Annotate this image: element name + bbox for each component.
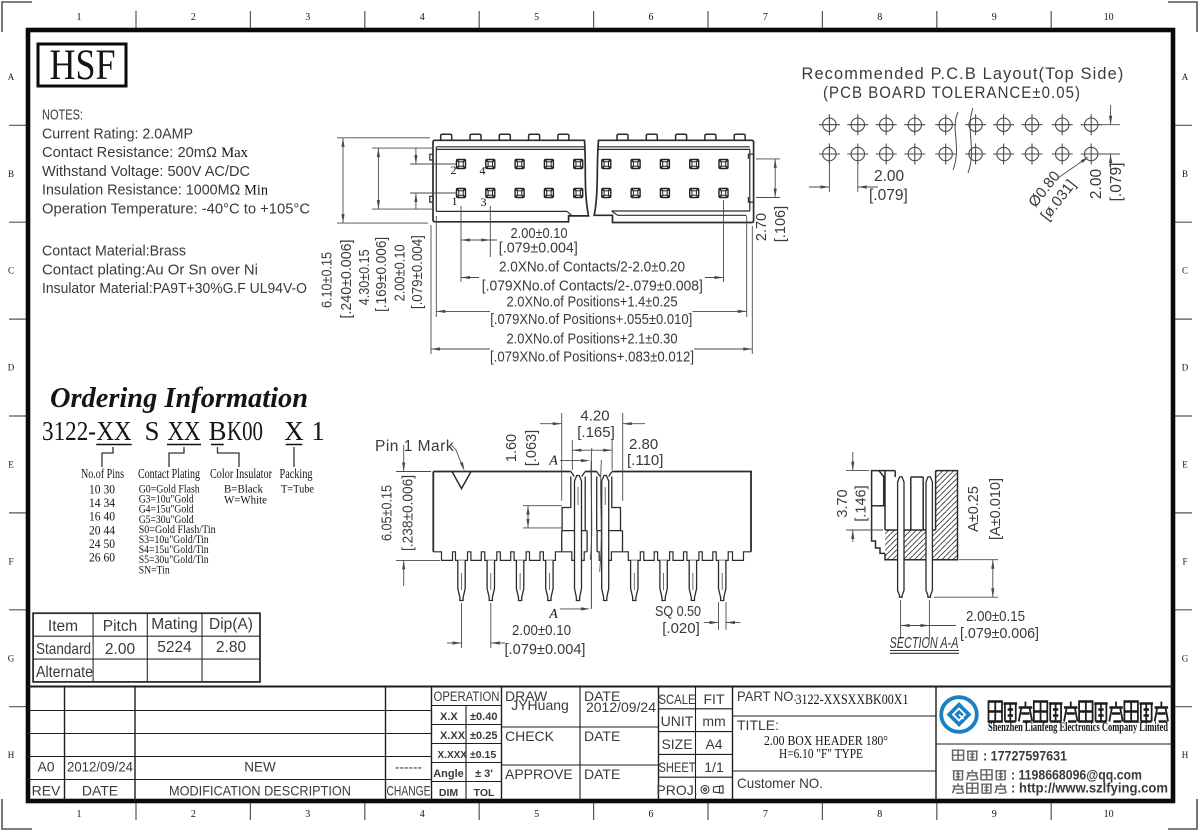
svg-text:20 44: 20 44: [89, 523, 116, 537]
svg-text:3: 3: [305, 809, 310, 820]
svg-text:2.00±0.10: 2.00±0.10: [392, 244, 409, 301]
svg-text:A4: A4: [705, 736, 722, 752]
svg-text:[.146]: [.146]: [854, 485, 870, 521]
svg-text:[.079]: [.079]: [1108, 163, 1125, 202]
svg-text:D: D: [1182, 363, 1189, 373]
svg-text:C: C: [8, 266, 14, 276]
svg-text:Standard: Standard: [36, 641, 91, 658]
svg-text:Contact Resistance: 20mΩ Max: Contact Resistance: 20mΩ Max: [42, 144, 248, 161]
svg-text:S: S: [144, 416, 159, 446]
svg-text:G: G: [8, 653, 15, 663]
svg-text:A: A: [8, 72, 15, 82]
svg-text:[.079±0.004]: [.079±0.004]: [499, 240, 578, 257]
svg-text:A±0.25: A±0.25: [966, 486, 982, 532]
svg-text:2.00±0.15: 2.00±0.15: [966, 608, 1025, 625]
svg-text:MODIFICATION DESCRIPTION: MODIFICATION DESCRIPTION: [169, 783, 351, 799]
svg-text:5: 5: [534, 12, 539, 23]
svg-text:REV: REV: [32, 783, 61, 799]
svg-text:±0.25: ±0.25: [470, 730, 497, 742]
svg-text:TOL: TOL: [474, 787, 495, 799]
svg-text:Contact Plating: Contact Plating: [138, 466, 200, 481]
svg-text:A: A: [548, 607, 558, 622]
svg-text:OPERATION: OPERATION: [434, 689, 500, 704]
svg-text:Angle: Angle: [433, 768, 464, 780]
svg-text:[.110]: [.110]: [627, 452, 663, 469]
svg-text:SHEET: SHEET: [659, 759, 696, 775]
svg-text:[.165]: [.165]: [577, 424, 615, 441]
svg-text:Current Rating: 2.0AMP: Current Rating: 2.0AMP: [42, 125, 193, 142]
svg-text:mm: mm: [702, 713, 725, 729]
svg-text:1.60: 1.60: [504, 434, 520, 462]
svg-text:HSF: HSF: [50, 42, 116, 89]
svg-text:2012/09/24: 2012/09/24: [586, 699, 656, 715]
svg-text:[A±0.010]: [A±0.010]: [988, 478, 1004, 540]
svg-text:: http://www.szlfying.com: : http://www.szlfying.com: [1011, 780, 1168, 796]
svg-text:± 3': ± 3': [475, 768, 493, 780]
svg-text:2: 2: [191, 12, 196, 23]
svg-text:2.80: 2.80: [629, 436, 658, 453]
svg-text:APPROVE: APPROVE: [505, 766, 573, 782]
svg-text:G: G: [1182, 653, 1189, 663]
svg-text:Alternate: Alternate: [36, 664, 93, 681]
svg-text:7: 7: [763, 12, 768, 23]
svg-text:A0: A0: [37, 759, 54, 775]
svg-text:B: B: [208, 416, 226, 446]
svg-text:H=6.10 "F" TYPE: H=6.10 "F" TYPE: [779, 746, 863, 761]
svg-text:X: X: [284, 416, 304, 446]
svg-text:3: 3: [481, 195, 487, 209]
svg-text:3: 3: [305, 12, 310, 23]
svg-text:Pitch: Pitch: [103, 618, 137, 635]
svg-text:D: D: [8, 363, 15, 373]
svg-text:NEW: NEW: [244, 760, 276, 775]
svg-text:6: 6: [649, 12, 654, 23]
svg-text:[.079XNo.of Positions+.055±0.0: [.079XNo.of Positions+.055±0.010]: [490, 311, 692, 328]
svg-text:4.30±0.15: 4.30±0.15: [356, 249, 373, 305]
svg-text:1: 1: [452, 194, 458, 208]
svg-text:Insulator Material:PA9T+30%G.F: Insulator Material:PA9T+30%G.F UL94V-O: [42, 280, 307, 297]
svg-text:14 34: 14 34: [89, 496, 116, 510]
svg-text:[.079]: [.079]: [869, 187, 908, 204]
svg-text:2.0XNo.of Positions+2.1±0.30: 2.0XNo.of Positions+2.1±0.30: [507, 331, 678, 348]
svg-text:SIZE: SIZE: [661, 736, 692, 752]
svg-text:Dip(A): Dip(A): [209, 616, 253, 633]
svg-text:5224: 5224: [157, 639, 192, 656]
svg-text:DIM: DIM: [439, 787, 459, 799]
svg-text:1: 1: [77, 12, 82, 23]
svg-text:Recommended P.C.B Layout(Top S: Recommended P.C.B Layout(Top Side): [802, 64, 1125, 83]
svg-text:No.of Pins: No.of Pins: [81, 466, 124, 481]
svg-text:SQ 0.50: SQ 0.50: [655, 603, 701, 620]
svg-text:9: 9: [992, 12, 997, 23]
svg-text:DATE: DATE: [82, 783, 118, 799]
svg-text:CHECK: CHECK: [505, 728, 555, 744]
svg-text:[.106]: [.106]: [773, 206, 789, 242]
svg-text:FIT: FIT: [704, 691, 725, 707]
svg-text:[.169±0.006]: [.169±0.006]: [373, 237, 390, 312]
svg-text:8: 8: [877, 809, 882, 820]
svg-text:SECTION A-A: SECTION A-A: [890, 635, 959, 652]
svg-text:K00: K00: [227, 416, 263, 446]
svg-text:2012/09/24: 2012/09/24: [67, 759, 133, 775]
svg-text:Packing: Packing: [280, 466, 313, 481]
svg-text:24 50: 24 50: [89, 537, 115, 551]
svg-text:E: E: [1182, 460, 1188, 470]
svg-text:------: ------: [395, 760, 422, 775]
svg-text:6: 6: [649, 809, 654, 820]
svg-text:4: 4: [420, 809, 425, 820]
svg-text:±0.15: ±0.15: [470, 749, 496, 761]
svg-text:[.020]: [.020]: [662, 620, 700, 637]
svg-text:DATE: DATE: [584, 728, 620, 744]
svg-text:2.00: 2.00: [874, 168, 905, 185]
svg-text:CHANGE: CHANGE: [387, 783, 431, 799]
svg-text:9: 9: [992, 809, 997, 820]
svg-text:[.079XNo.of Contacts/2-.079±0.: [.079XNo.of Contacts/2-.079±0.008]: [482, 278, 703, 295]
svg-text:2.70: 2.70: [754, 213, 770, 241]
svg-text:1: 1: [311, 416, 325, 446]
svg-text:10: 10: [1104, 809, 1114, 820]
svg-text:Operation Temperature: -40°C t: Operation Temperature: -40°C to +105°C: [42, 201, 310, 218]
svg-text:T=Tube: T=Tube: [281, 482, 314, 496]
svg-text:2.0XNo.of Positions+1.4±0.25: 2.0XNo.of Positions+1.4±0.25: [507, 294, 678, 311]
svg-text:5: 5: [534, 809, 539, 820]
svg-text:Mating: Mating: [151, 616, 198, 633]
svg-text:[.079±0.004]: [.079±0.004]: [505, 641, 586, 658]
svg-text:2.00: 2.00: [105, 641, 136, 658]
svg-text:2: 2: [191, 809, 196, 820]
svg-text:Contact Material:Brass: Contact Material:Brass: [42, 243, 186, 260]
svg-text:PROJ.: PROJ.: [656, 782, 697, 798]
svg-text:[.079±0.006]: [.079±0.006]: [960, 625, 1039, 642]
svg-text:X.X: X.X: [440, 711, 458, 723]
svg-text:7: 7: [763, 809, 768, 820]
svg-text:SCALE: SCALE: [659, 691, 696, 707]
svg-text:10 30: 10 30: [89, 483, 115, 497]
svg-text:F: F: [1182, 556, 1187, 566]
svg-text:A: A: [548, 454, 558, 469]
svg-text:TITLE:: TITLE:: [737, 717, 779, 733]
svg-text:3122-: 3122-: [42, 416, 96, 446]
svg-text:Shenzhen Lianfeng Electronics: Shenzhen Lianfeng Electronics Company Li…: [988, 720, 1168, 734]
svg-text:H: H: [8, 750, 15, 760]
svg-text:[.079±0.004]: [.079±0.004]: [409, 235, 426, 309]
svg-text:W=White: W=White: [224, 493, 267, 507]
svg-text:Pin 1 Mark: Pin 1 Mark: [375, 438, 454, 455]
svg-text:2.0XNo.of Contacts/2-2.0±0.20: 2.0XNo.of Contacts/2-2.0±0.20: [499, 259, 685, 276]
svg-text:3122-XXSXXBK00X1: 3122-XXSXXBK00X1: [796, 692, 909, 708]
svg-text:Ordering Information: Ordering Information: [50, 383, 308, 414]
svg-text:4.20: 4.20: [580, 408, 609, 425]
svg-text:26 60: 26 60: [89, 551, 115, 565]
svg-text:DATE: DATE: [584, 766, 620, 782]
svg-text:2.00±0.10: 2.00±0.10: [512, 622, 571, 639]
svg-text:XX: XX: [168, 416, 201, 446]
svg-text:E: E: [8, 460, 14, 470]
svg-text:[.240±0.006]: [.240±0.006]: [338, 240, 355, 319]
svg-text:PART NO.: PART NO.: [737, 688, 797, 704]
svg-text:: 17727597631: : 17727597631: [983, 748, 1067, 764]
svg-text:6.10±0.15: 6.10±0.15: [319, 252, 336, 308]
svg-text:1/1: 1/1: [704, 759, 724, 775]
svg-text:[.238±0.006]: [.238±0.006]: [401, 475, 417, 551]
svg-text:2.80: 2.80: [216, 639, 247, 656]
svg-text:4: 4: [480, 164, 486, 178]
svg-text:1: 1: [77, 809, 82, 820]
svg-text:[.063]: [.063]: [524, 430, 540, 466]
svg-text:Contact plating:Au Or Sn over: Contact plating:Au Or Sn over Ni: [42, 261, 258, 278]
svg-text:XX: XX: [97, 416, 132, 446]
svg-text:H: H: [1182, 750, 1189, 760]
svg-text:Insulation Resistance: 1000MΩ: Insulation Resistance: 1000MΩ Min: [42, 182, 268, 199]
svg-text:JYHuang: JYHuang: [511, 697, 569, 713]
svg-text:Item: Item: [48, 618, 78, 635]
svg-text:X.XX: X.XX: [440, 730, 466, 742]
svg-text:8: 8: [877, 12, 882, 23]
svg-text:Withstand Voltage: 500V AC/DC: Withstand Voltage: 500V AC/DC: [42, 163, 250, 180]
svg-text:±0.40: ±0.40: [470, 711, 497, 723]
svg-text:X.XXX: X.XXX: [438, 750, 468, 761]
svg-text:F: F: [8, 556, 13, 566]
svg-text:B: B: [1182, 169, 1188, 179]
svg-text:4: 4: [420, 12, 425, 23]
svg-text:2: 2: [451, 163, 457, 177]
svg-text:B: B: [8, 169, 14, 179]
svg-text:UNIT: UNIT: [661, 713, 694, 729]
svg-text:(PCB BOARD TOLERANCE±0.05): (PCB BOARD TOLERANCE±0.05): [823, 83, 1081, 102]
svg-text:Color Insulator: Color Insulator: [210, 466, 272, 481]
svg-text:C: C: [1182, 266, 1188, 276]
svg-text:2.00: 2.00: [1088, 169, 1105, 200]
svg-text:SN=Tin: SN=Tin: [139, 564, 170, 576]
svg-text:10: 10: [1104, 12, 1114, 23]
svg-text:3.70: 3.70: [835, 489, 851, 517]
svg-text:A: A: [1182, 72, 1189, 82]
svg-text:Customer NO.: Customer NO.: [737, 775, 823, 791]
svg-text:6.05±0.15: 6.05±0.15: [380, 485, 396, 541]
svg-text:16 40: 16 40: [89, 510, 115, 524]
svg-text:[.079XNo.of Positions+.083±0.0: [.079XNo.of Positions+.083±0.012]: [490, 349, 694, 366]
svg-text:NOTES:: NOTES:: [42, 107, 83, 124]
